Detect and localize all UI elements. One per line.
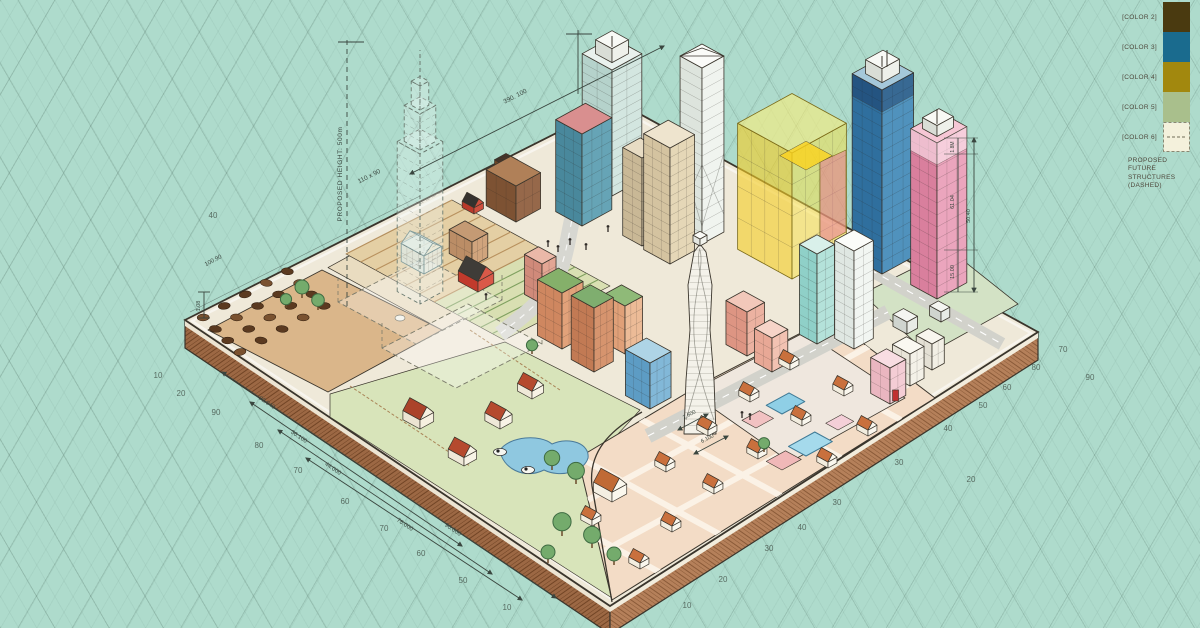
grid-number: 70 bbox=[1059, 345, 1068, 354]
legend-label: [COLOR 2] bbox=[1122, 14, 1157, 21]
legend-label: [COLOR 3] bbox=[1122, 44, 1157, 51]
grid-number: 20 bbox=[967, 475, 976, 484]
grid-number: 40 bbox=[944, 424, 953, 433]
legend-label: [COLOR 5] bbox=[1122, 104, 1157, 111]
grid-number: 10 bbox=[154, 371, 163, 380]
grid-number: 10 bbox=[683, 601, 692, 610]
isometric-city-scene: PROPOSED HEIGHT: 500m 390. 100 110 x 90 … bbox=[0, 0, 1200, 628]
grid-number: 30 bbox=[895, 458, 904, 467]
legend-swatch-color-2 bbox=[1163, 2, 1190, 32]
grid-number: 50 bbox=[459, 576, 468, 585]
blueprint-canvas: PROPOSED HEIGHT: 500m 390. 100 110 x 90 … bbox=[0, 0, 1200, 628]
grid-number: 20 bbox=[177, 389, 186, 398]
right-dim-3: 15.00 bbox=[950, 265, 956, 279]
grid-number: 60 bbox=[417, 549, 426, 558]
grid-number: 90 bbox=[212, 408, 221, 417]
grid-number: 80 bbox=[1032, 363, 1041, 372]
legend-label: [COLOR 6] bbox=[1122, 134, 1157, 141]
grid-number: 60 bbox=[341, 497, 350, 506]
legend-label: [COLOR 4] bbox=[1122, 74, 1157, 81]
top-edge-dim: 390. 100 bbox=[502, 88, 528, 106]
right-dim-2: 50.40 bbox=[966, 209, 972, 223]
legend-item-color-6: [COLOR 6] bbox=[1122, 122, 1190, 152]
legend-swatch-color-4 bbox=[1163, 62, 1190, 92]
right-dim-1: 61.04 bbox=[950, 195, 956, 209]
grid-number: 10 bbox=[503, 603, 512, 612]
legend-item-color-3: [COLOR 3] bbox=[1122, 32, 1190, 62]
grid-number: 60 bbox=[1003, 383, 1012, 392]
legend-swatch-color-3 bbox=[1163, 32, 1190, 62]
legend-item-color-5: [COLOR 5] bbox=[1122, 92, 1190, 122]
sw-dim-1: 36.100 bbox=[289, 430, 308, 446]
sw-dim-2: 44.000 bbox=[323, 462, 342, 478]
legend-swatch-color-5 bbox=[1163, 92, 1190, 122]
legend-swatch-color-6-dashed bbox=[1163, 122, 1190, 152]
legend-note: PROPOSED FUTURE STRUCTURES (DASHED) bbox=[1128, 157, 1190, 191]
right-dim-0: 1.8M bbox=[950, 141, 956, 152]
grid-number: 30 bbox=[765, 544, 774, 553]
proposed-height-label: PROPOSED HEIGHT: 500m bbox=[337, 127, 344, 222]
nw-dim-a: 110 x 90 bbox=[357, 168, 382, 186]
nw-dim-b: 100.90 bbox=[204, 254, 224, 268]
grid-number: 90 bbox=[1086, 373, 1095, 382]
legend-item-color-4: [COLOR 4] bbox=[1122, 62, 1190, 92]
grid-number: 50 bbox=[979, 401, 988, 410]
legend: [COLOR 2] [COLOR 3] [COLOR 4] [COLOR 5] … bbox=[1122, 2, 1190, 191]
grid-number: 40 bbox=[209, 211, 218, 220]
grid-number: 70 bbox=[380, 524, 389, 533]
grid-number: 70 bbox=[294, 466, 303, 475]
grid-number: 40 bbox=[798, 523, 807, 532]
grid-number: 30 bbox=[833, 498, 842, 507]
corner-dim: 1.08 bbox=[196, 301, 202, 312]
grid-number: 80 bbox=[255, 441, 264, 450]
grid-number: 20 bbox=[719, 575, 728, 584]
legend-item-color-2: [COLOR 2] bbox=[1122, 2, 1190, 32]
